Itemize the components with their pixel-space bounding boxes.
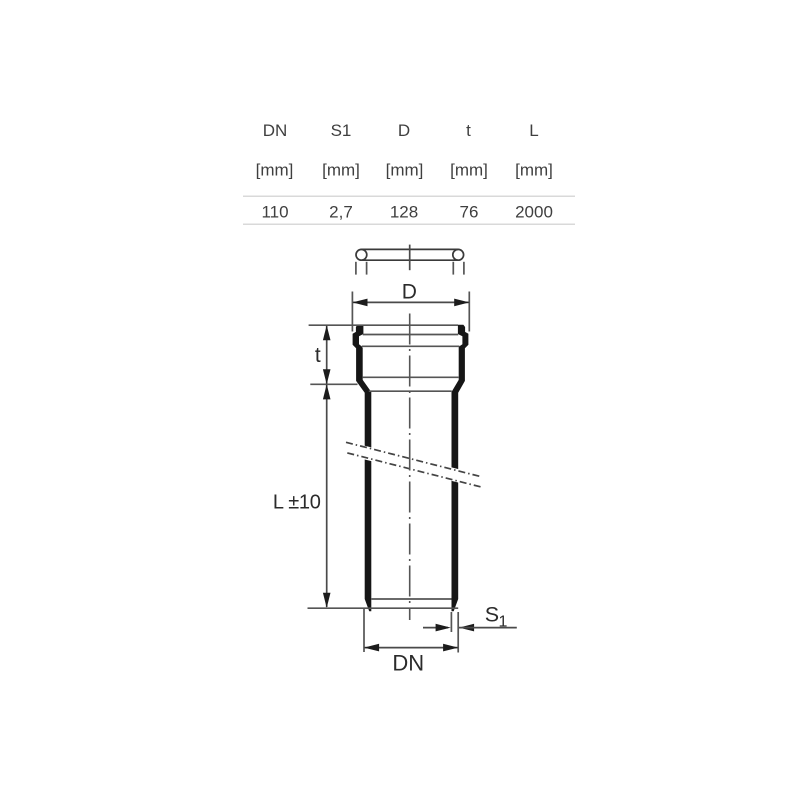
svg-text:[mm]: [mm] [515,161,553,180]
svg-text:t: t [466,121,471,140]
svg-text:1: 1 [499,614,508,631]
svg-text:76: 76 [460,203,479,222]
svg-text:[mm]: [mm] [322,161,360,180]
svg-text:[mm]: [mm] [386,161,424,180]
svg-text:S: S [485,603,499,627]
svg-text:2,7: 2,7 [329,203,353,222]
svg-text:D: D [402,281,417,304]
svg-text:110: 110 [261,203,288,222]
svg-text:L: L [529,121,538,140]
svg-text:DN: DN [392,651,424,676]
svg-text:128: 128 [390,203,418,222]
svg-text:2000: 2000 [515,203,553,222]
svg-text:L ±10: L ±10 [273,491,321,513]
svg-text:D: D [398,121,410,140]
svg-text:S1: S1 [331,121,352,140]
svg-text:[mm]: [mm] [256,161,294,180]
svg-text:[mm]: [mm] [450,161,488,180]
svg-text:t: t [315,344,321,367]
svg-text:DN: DN [263,121,288,140]
